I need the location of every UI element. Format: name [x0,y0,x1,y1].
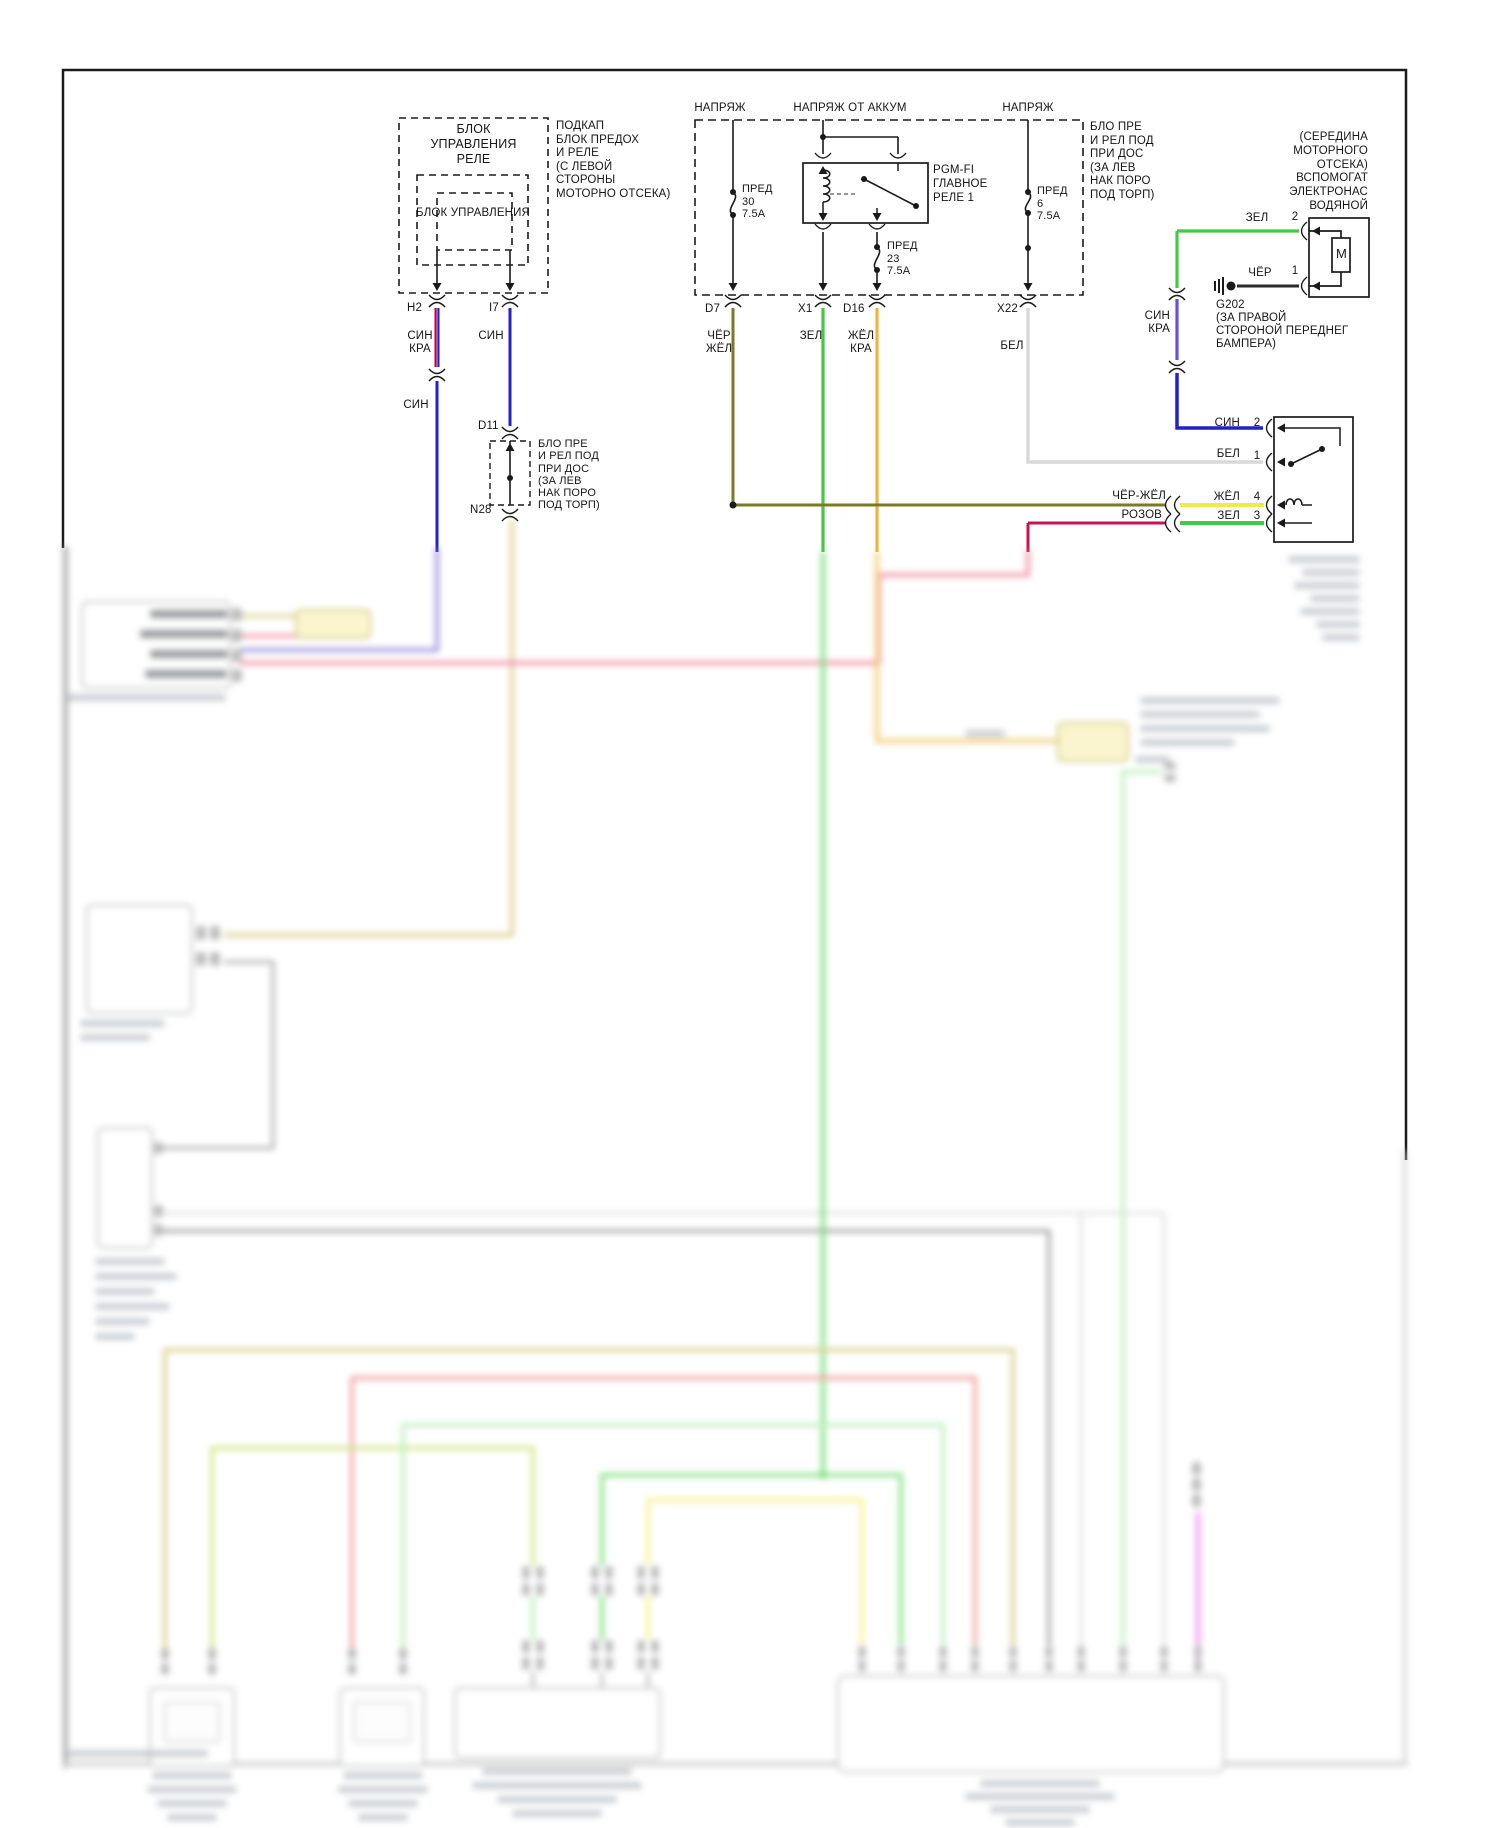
connector-d11: D11 [478,420,499,433]
wire-label-sin-h2: СИН [399,399,433,412]
wire-label-sin-pin2: СИН [1200,417,1240,430]
relay-unit-inner-label: БЛОК УПРАВЛЕНИЯ [415,207,531,220]
d11-note: БЛО ПРЕ И РЕЛ ПОД ПРИ ДОС (ЗА ЛЕВ НАК ПО… [538,438,600,512]
ground-id: G202 [1216,299,1245,312]
relay-pin-1: 1 [1250,450,1264,463]
wire-label-rozov: РОЗОВ [1100,509,1162,522]
connector-n28: N28 [470,504,492,517]
motor-m-symbol: M [1333,247,1350,260]
relay-pin-3: 3 [1250,510,1264,523]
ground-note: (ЗА ПРАВОЙ СТОРОНОЙ ПЕРЕДНЕГ БАМПЕРА) [1216,312,1348,351]
relay-pin-4: 4 [1250,491,1264,504]
relay-unit-title: БЛОК УПРАВЛЕНИЯ РЕЛЕ [399,122,548,167]
voltage-label-right: НАПРЯЖ [967,102,1089,115]
fuse-6-label: ПРЕД 6 7.5A [1037,185,1068,223]
wire-label-sin-i7: СИН [474,330,508,343]
wire-label-chyor: ЧЁР [1243,267,1277,280]
pin-h2: H2 [407,302,422,315]
wire-label-chyor-zhyol-row: ЧЁР-ЖЁЛ [1090,490,1166,503]
pin-i7: I7 [489,302,499,315]
wire-label-zhyol-kra: ЖЁЛ КРА [842,330,880,356]
fuse-23-label: ПРЕД 23 7.5A [887,240,918,278]
pin-d7: D7 [705,303,720,316]
fusebox-note: БЛО ПРЕ И РЕЛ ПОД ПРИ ДОС (ЗА ЛЕВ НАК ПО… [1090,121,1155,202]
wire-label-bel-pin1: БЕЛ [1200,448,1240,461]
pin-x1: X1 [798,303,812,316]
motor-pin-1: 1 [1288,265,1302,278]
motor-pin-2: 2 [1288,211,1302,224]
wire-label-chyor-zhyol: ЧЁР ЖЁЛ [700,330,738,356]
pgmfi-relay-label: PGM-FI ГЛАВНОЕ РЕЛЕ 1 [933,163,987,205]
wire-label-sin-kra-h2: СИН КРА [403,330,437,356]
pump-location-note: (СЕРЕДИНА МОТОРНОГО ОТСЕКА) ВСПОМОГАТ ЭЛ… [1235,131,1368,214]
relay-pin-2: 2 [1250,417,1264,430]
fuse-30-label: ПРЕД 30 7.5A [742,183,773,221]
voltage-label-battery: НАПРЯЖ ОТ АККУМ [780,102,920,115]
wire-label-sin-kra-right: СИН КРА [1134,310,1170,336]
voltage-label-left: НАПРЯЖ [672,102,768,115]
wire-label-bel-x22: БЕЛ [995,340,1029,353]
wire-label-zhyol-pin4: ЖЁЛ [1198,491,1240,504]
wire-label-zel-pin3: ЗЕЛ [1198,510,1240,523]
pin-x22: X22 [997,303,1018,316]
wire-label-zel-x1: ЗЕЛ [794,330,828,343]
pin-d16: D16 [843,303,865,316]
wiring-diagram: БЛОК УПРАВЛЕНИЯ РЕЛЕ БЛОК УПРАВЛЕНИЯ ПОД… [0,0,1500,1828]
underhood-note: ПОДКАП БЛОК ПРЕДОХ И РЕЛЕ (С ЛЕВОЙ СТОРО… [556,120,681,201]
wire-label-zel-pump: ЗЕЛ [1240,212,1274,225]
